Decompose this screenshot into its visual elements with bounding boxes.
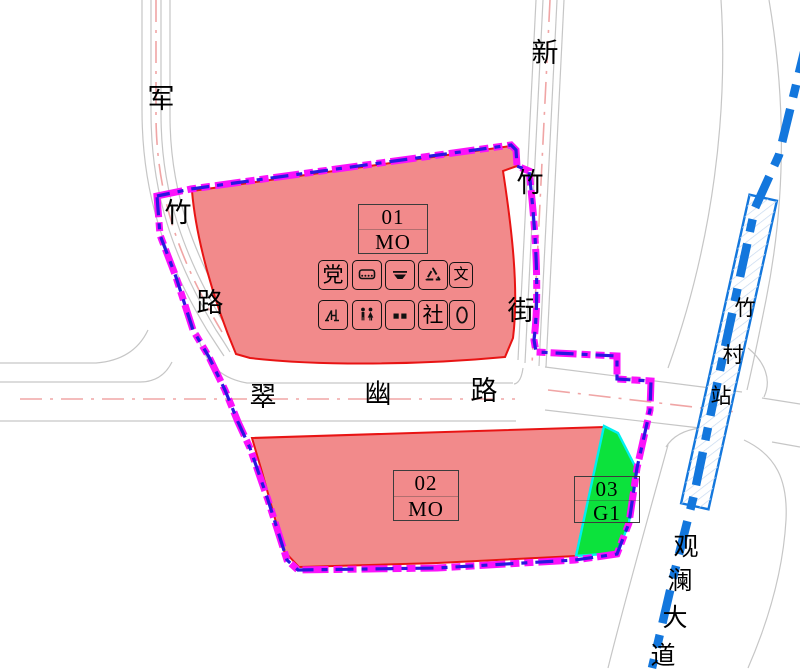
sports-facility-icon: [318, 300, 348, 330]
road-label-char: 幽: [363, 379, 393, 409]
guanlan-blvd-edge: [668, 0, 723, 368]
parcel-code: G1: [575, 501, 639, 524]
cuiyou-road-edge: [0, 330, 148, 363]
road-label-char: 街: [506, 296, 536, 326]
refuse-collection-glyph: [390, 305, 410, 325]
road-label-char: 军: [146, 84, 176, 114]
public-toilet-icon: [352, 300, 382, 330]
party-building-icon: 党: [318, 260, 348, 290]
community-center-icon: 社: [418, 300, 448, 330]
recycling-glyph: [423, 265, 443, 285]
parcel-01-label-box: 01 MO: [358, 204, 428, 254]
planning-map: 军 竹 路 新 竹 街 翠 幽 路 观 澜 大 道 竹 村 站 01 MO 02…: [0, 0, 800, 670]
road-label-char: 路: [195, 288, 225, 318]
refuse-transfer-icon: [385, 260, 415, 290]
postal-glyph: [452, 304, 472, 326]
recycling-station-icon: [418, 260, 448, 290]
cuiyou-road-east-edge: [545, 410, 700, 428]
road-label-char: 路: [469, 376, 499, 406]
guanlan-blvd-edge: [744, 440, 786, 668]
party-glyph: 党: [323, 265, 344, 286]
junction-fillet: [514, 368, 523, 384]
parcel-03-label-box: 03 G1: [574, 476, 640, 523]
parcel-number: 03: [575, 477, 639, 501]
parcel-number: 01: [359, 205, 427, 230]
road-label-char: 大: [661, 605, 689, 633]
station-label-char: 站: [709, 384, 733, 408]
toilet-glyph: [357, 305, 377, 325]
cuiyou-road-east-edge: [762, 398, 800, 404]
station-label-char: 竹: [733, 296, 757, 320]
refuse-transfer-glyph: [390, 265, 410, 285]
road-label-char: 竹: [515, 168, 545, 198]
culture-glyph: 文: [453, 268, 468, 283]
bus-terminal-icon: [352, 260, 382, 290]
cuiyou-road-east-edge: [772, 442, 800, 447]
road-label-char: 道: [649, 643, 677, 670]
bus-terminal-glyph: [357, 265, 377, 285]
road-label-char: 新: [530, 38, 560, 68]
refuse-collection-icon: [385, 300, 415, 330]
station-label-char: 村: [721, 343, 745, 367]
parcel-code: MO: [359, 230, 427, 254]
sports-glyph: [323, 305, 343, 325]
cuiyou-road-edge: [0, 362, 172, 382]
culture-room-icon: 文: [449, 262, 473, 288]
road-label-char: 翠: [248, 382, 278, 412]
parcel-01-area: [192, 146, 517, 364]
postal-icon: [449, 300, 475, 330]
parcel-number: 02: [394, 471, 458, 497]
road-label-char: 澜: [666, 568, 694, 596]
parcel-02-label-box: 02 MO: [393, 470, 459, 521]
community-glyph: 社: [423, 305, 444, 326]
road-label-char: 竹: [163, 198, 193, 228]
road-label-char: 观: [672, 534, 700, 562]
parcel-code: MO: [394, 497, 458, 522]
